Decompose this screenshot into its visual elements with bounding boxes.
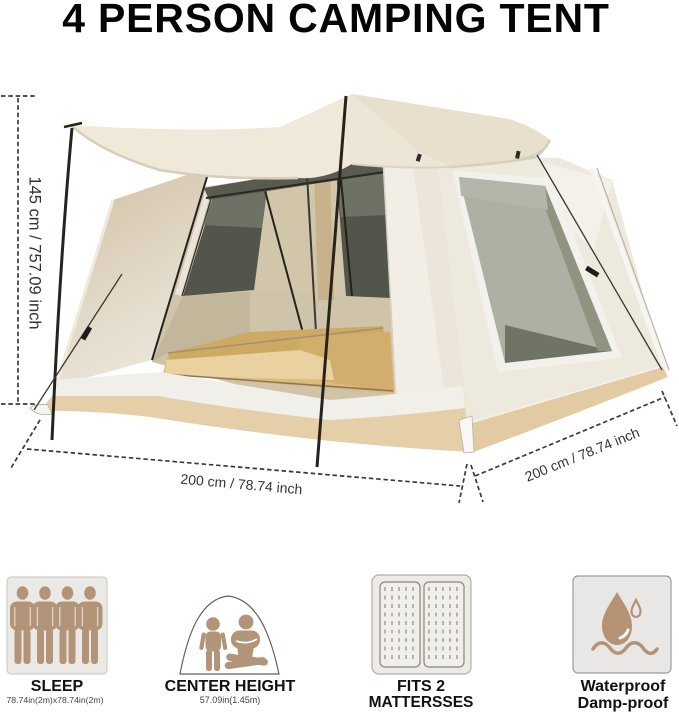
svg-text:MATTERSSES: MATTERSSES [369,694,474,711]
svg-text:78.74in(2m)x78.74in(2m): 78.74in(2m)x78.74in(2m) [6,695,103,705]
svg-text:SLEEP: SLEEP [31,678,84,695]
svg-text:145 cm / 757.09 inch: 145 cm / 757.09 inch [26,176,44,329]
svg-text:57.09in(1.45m): 57.09in(1.45m) [200,695,261,705]
svg-text:FITS 2: FITS 2 [397,678,445,695]
svg-text:Waterproof: Waterproof [581,678,666,695]
svg-text:4 PERSON CAMPING TENT: 4 PERSON CAMPING TENT [62,0,610,41]
svg-text:Damp-proof: Damp-proof [578,695,669,712]
svg-text:CENTER HEIGHT: CENTER HEIGHT [165,678,296,695]
